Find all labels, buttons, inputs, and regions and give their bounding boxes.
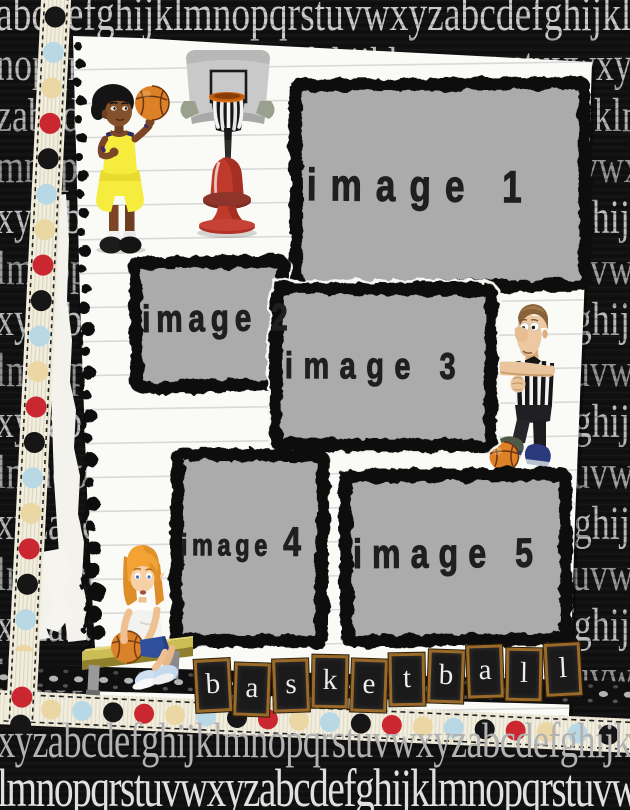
svg-text:lmnopqrstuvwxyzabcdefghijklmno: lmnopqrstuvwxyzabcdefghijklmnopqrstuvw bbox=[0, 759, 630, 810]
